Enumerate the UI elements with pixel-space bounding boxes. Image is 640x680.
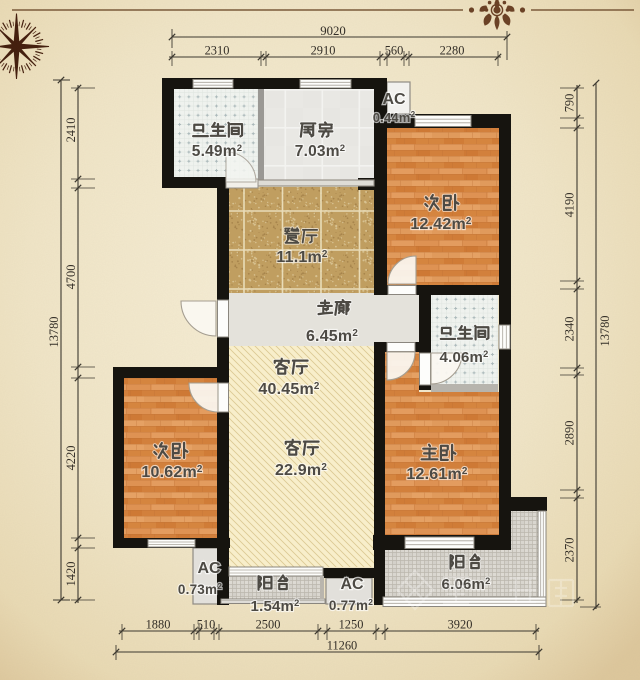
svg-text:13780: 13780	[47, 317, 61, 348]
svg-text:2410: 2410	[64, 118, 78, 143]
svg-text:13780: 13780	[598, 316, 612, 347]
svg-text:560: 560	[385, 44, 404, 58]
svg-text:2890: 2890	[563, 421, 577, 446]
svg-text:4.06m2: 4.06m2	[440, 349, 489, 366]
svg-text:AC: AC	[382, 91, 406, 108]
svg-text:0.77m2: 0.77m2	[329, 597, 373, 613]
svg-text:9020: 9020	[320, 24, 346, 38]
svg-text:0.44m2: 0.44m2	[373, 110, 416, 125]
svg-text:11.1m2: 11.1m2	[276, 249, 327, 266]
svg-text:AC: AC	[340, 576, 364, 593]
svg-text:12.61m2: 12.61m2	[406, 466, 467, 483]
svg-text:AC: AC	[197, 560, 221, 577]
svg-text:5.49m2: 5.49m2	[192, 143, 243, 160]
svg-text:6.06m2: 6.06m2	[442, 576, 491, 593]
svg-text:0.73m2: 0.73m2	[178, 581, 222, 597]
svg-text:4190: 4190	[563, 193, 577, 218]
svg-text:1.54m2: 1.54m2	[251, 598, 300, 615]
svg-text:2500: 2500	[256, 618, 281, 632]
svg-text:1880: 1880	[146, 618, 171, 632]
svg-text:2910: 2910	[311, 44, 336, 58]
svg-text:40.45m2: 40.45m2	[258, 381, 319, 398]
svg-text:510: 510	[197, 618, 216, 632]
svg-text:790: 790	[563, 94, 577, 113]
svg-text:12.42m2: 12.42m2	[410, 216, 471, 233]
svg-text:22.9m2: 22.9m2	[275, 462, 327, 479]
svg-text:2370: 2370	[563, 538, 577, 563]
svg-text:11260: 11260	[327, 639, 358, 653]
svg-text:1420: 1420	[64, 562, 78, 587]
svg-text:2310: 2310	[205, 44, 230, 58]
svg-text:4220: 4220	[64, 446, 78, 471]
svg-text:4700: 4700	[64, 265, 78, 290]
svg-text:2280: 2280	[440, 44, 465, 58]
svg-text:2340: 2340	[563, 317, 577, 342]
svg-text:7.03m2: 7.03m2	[295, 143, 346, 160]
svg-text:6.45m2: 6.45m2	[306, 328, 358, 345]
svg-text:3920: 3920	[448, 618, 473, 632]
svg-text:10.62m2: 10.62m2	[141, 464, 202, 481]
svg-text:1250: 1250	[339, 618, 364, 632]
